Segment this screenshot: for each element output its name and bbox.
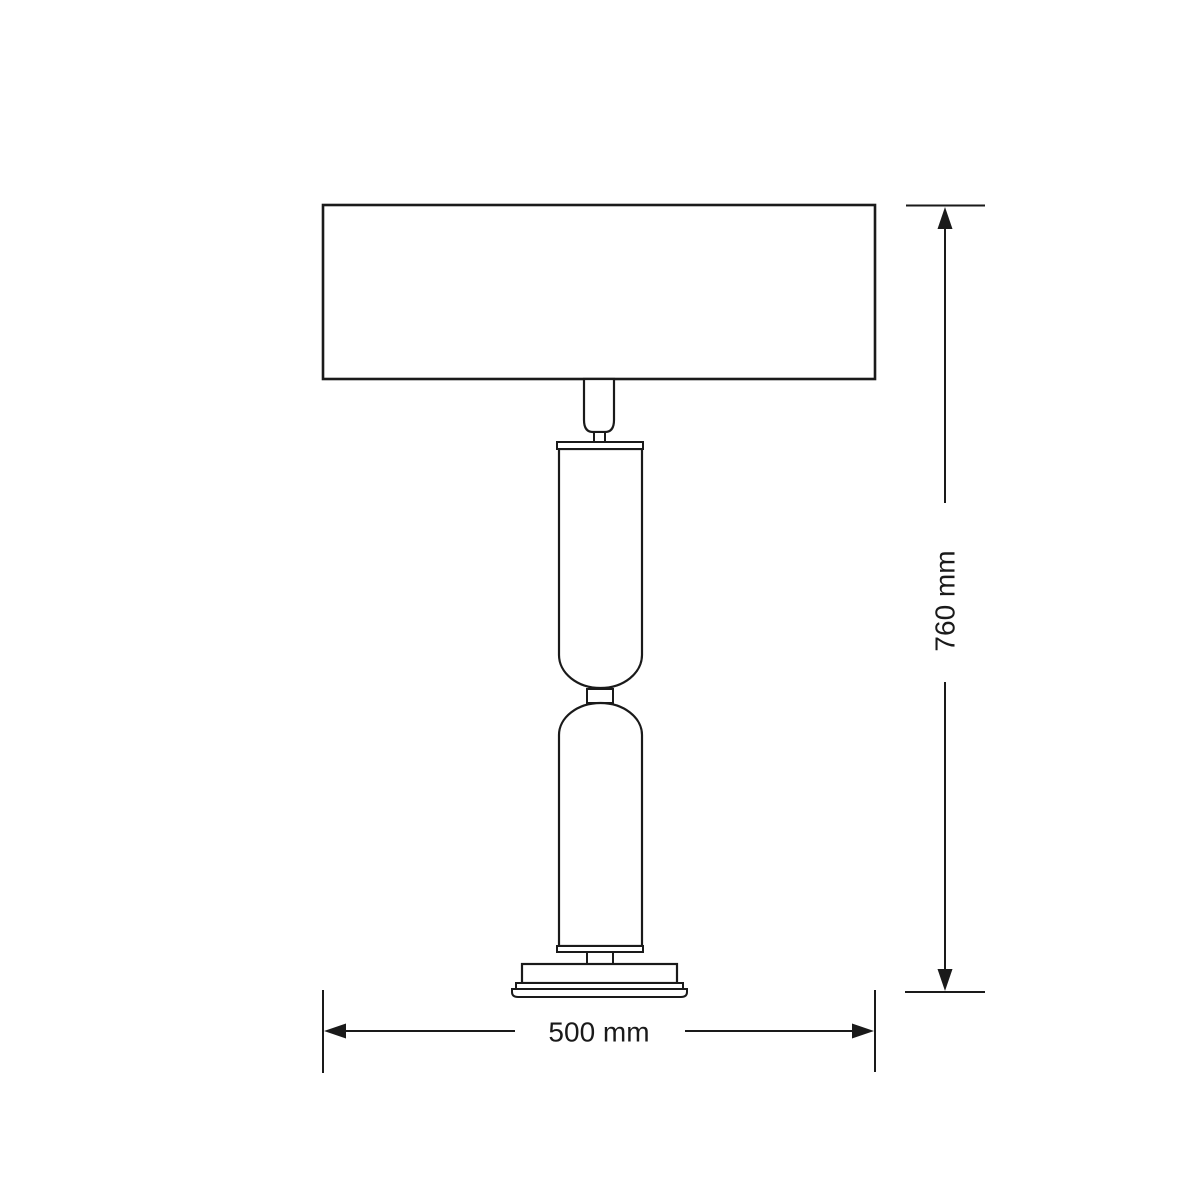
height-dimension-label: 760 mm — [930, 550, 961, 651]
width-dimension: 500 mm — [323, 990, 875, 1073]
lamp-outline — [323, 205, 875, 997]
height-dimension: 760 mm — [905, 206, 985, 993]
base-stem — [587, 952, 613, 964]
drawing-canvas: 760 mm 500 mm — [0, 0, 1200, 1200]
arrow-right-icon — [852, 1024, 874, 1039]
lampshade — [323, 205, 875, 379]
socket — [584, 379, 614, 432]
connector-ring — [587, 689, 613, 703]
lower-cylinder — [559, 703, 642, 946]
arrow-down-icon — [938, 969, 953, 991]
base-bottom-tier — [512, 989, 687, 997]
lamp-technical-drawing: 760 mm 500 mm — [0, 0, 1200, 1200]
arrow-left-icon — [324, 1024, 346, 1039]
top-cap — [557, 442, 643, 449]
width-dimension-label: 500 mm — [548, 1017, 649, 1048]
base-upper-tier — [522, 964, 677, 983]
upper-cylinder — [559, 449, 642, 688]
arrow-up-icon — [938, 207, 953, 229]
